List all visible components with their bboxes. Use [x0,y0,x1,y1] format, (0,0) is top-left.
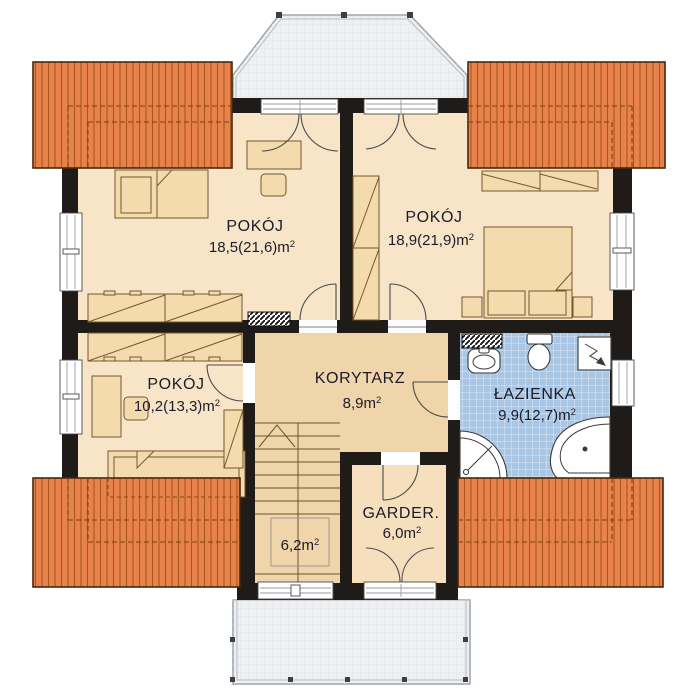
roof-top-left [33,62,232,168]
room3-area: 10,2(13,3)m2 [134,398,220,415]
toilet [527,334,552,370]
roof-bottom-right [458,478,663,587]
radiator [462,334,502,348]
korytarz-area: 8,9m2 [343,395,382,412]
wardrobe [88,333,242,361]
roof-bottom-left [33,478,245,587]
roof-top-right [468,62,665,168]
garderoba-label: GARDER. [362,505,439,522]
garderoba-area: 6,0m2 [383,525,422,542]
desk [92,376,121,437]
window-left-room1 [60,213,82,291]
floor-plan-page: POKÓJ 18,5(21,6)m2 POKÓJ 18,9(21,9)m2 PO… [0,0,700,700]
window-left-room3 [60,360,82,434]
lazienka-area: 9,9(12,7)m2 [498,407,576,424]
single-bed [115,170,208,218]
nightstand [462,297,482,317]
window-right-room2 [610,213,634,290]
bottom-terrace [230,600,470,684]
korytarz-label: KORYTARZ [315,370,405,387]
chair [261,174,286,196]
room2-area: 18,9(21,9)m2 [388,232,474,249]
desk [247,141,301,169]
dresser [482,171,598,191]
stairs-area: 6,2m2 [281,537,320,554]
room2-label: POKÓJ [405,207,462,226]
tall-wardrobe [353,176,379,320]
wardrobe [88,291,242,322]
nightstand [573,297,592,317]
cabinet [224,410,243,468]
lazienka-label: ŁAZIENKA [494,386,576,403]
room3-label: POKÓJ [147,374,204,393]
sink [468,348,500,373]
window-bathroom [612,360,634,406]
room1-area: 18,5(21,6)m2 [209,239,295,256]
top-balcony [233,12,467,100]
room-garderoba-floor [352,465,446,583]
window-stairs [258,582,333,599]
radiator [248,312,290,326]
floor-plan-canvas: POKÓJ 18,5(21,6)m2 POKÓJ 18,9(21,9)m2 PO… [0,0,700,700]
room1-label: POKÓJ [226,216,283,235]
skylight-icon [578,337,611,370]
